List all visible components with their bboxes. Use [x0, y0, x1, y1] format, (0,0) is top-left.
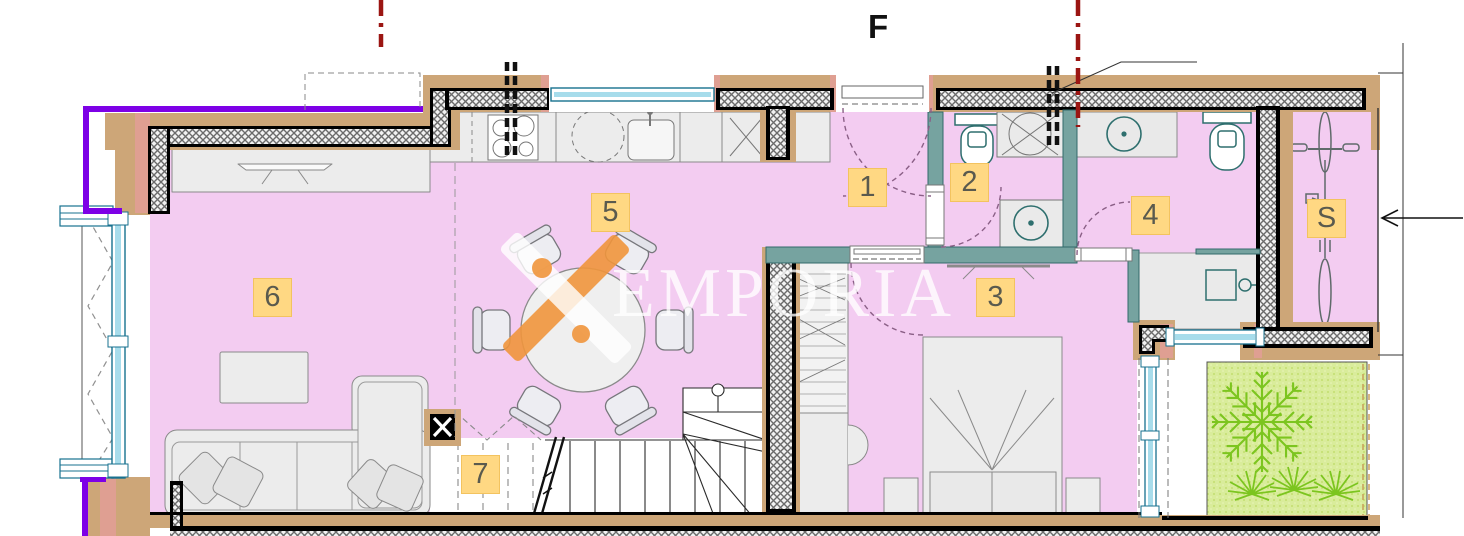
entrance-arrow [1382, 210, 1463, 226]
dimension-boundary [1378, 43, 1403, 518]
toilet-icon-wc [955, 114, 999, 166]
wardrobe [794, 263, 848, 413]
column-x [430, 414, 455, 440]
bathroom-window [1166, 328, 1264, 346]
entry-opening [836, 75, 929, 112]
roof-overhang-dashed [305, 73, 420, 110]
room-label-toilet: 2 [950, 163, 989, 202]
kitchen-window [549, 75, 714, 112]
sliding-door [850, 246, 924, 263]
room-label-bedroom: 3 [976, 278, 1015, 317]
floor-plan-canvas: 1 2 3 4 5 6 7 S F EMPORIA [0, 0, 1464, 536]
washing-machine-icon [1000, 200, 1063, 247]
room-label-storage: S [1307, 199, 1346, 238]
shower-area-bath [1137, 253, 1260, 329]
garden [1207, 362, 1369, 518]
nightstand-right [1066, 478, 1100, 515]
balcony-window [60, 206, 128, 478]
stair-landing-floor [683, 388, 766, 441]
nightstand-left [884, 478, 918, 515]
desk [794, 413, 848, 517]
coffee-table [220, 352, 308, 403]
double-bed [923, 337, 1062, 517]
room-label-entry-hall: 1 [848, 168, 887, 207]
floor-plan-drawing [0, 0, 1464, 536]
facade-label: F [868, 8, 888, 46]
room-label-kitchen-dining: 5 [591, 193, 630, 232]
tree-icon [1212, 372, 1312, 472]
room-label-stairs-area: 7 [461, 455, 500, 494]
room-label-living-room: 6 [253, 278, 292, 317]
room-label-bathroom: 4 [1131, 196, 1170, 235]
shower-icon [997, 112, 1063, 157]
